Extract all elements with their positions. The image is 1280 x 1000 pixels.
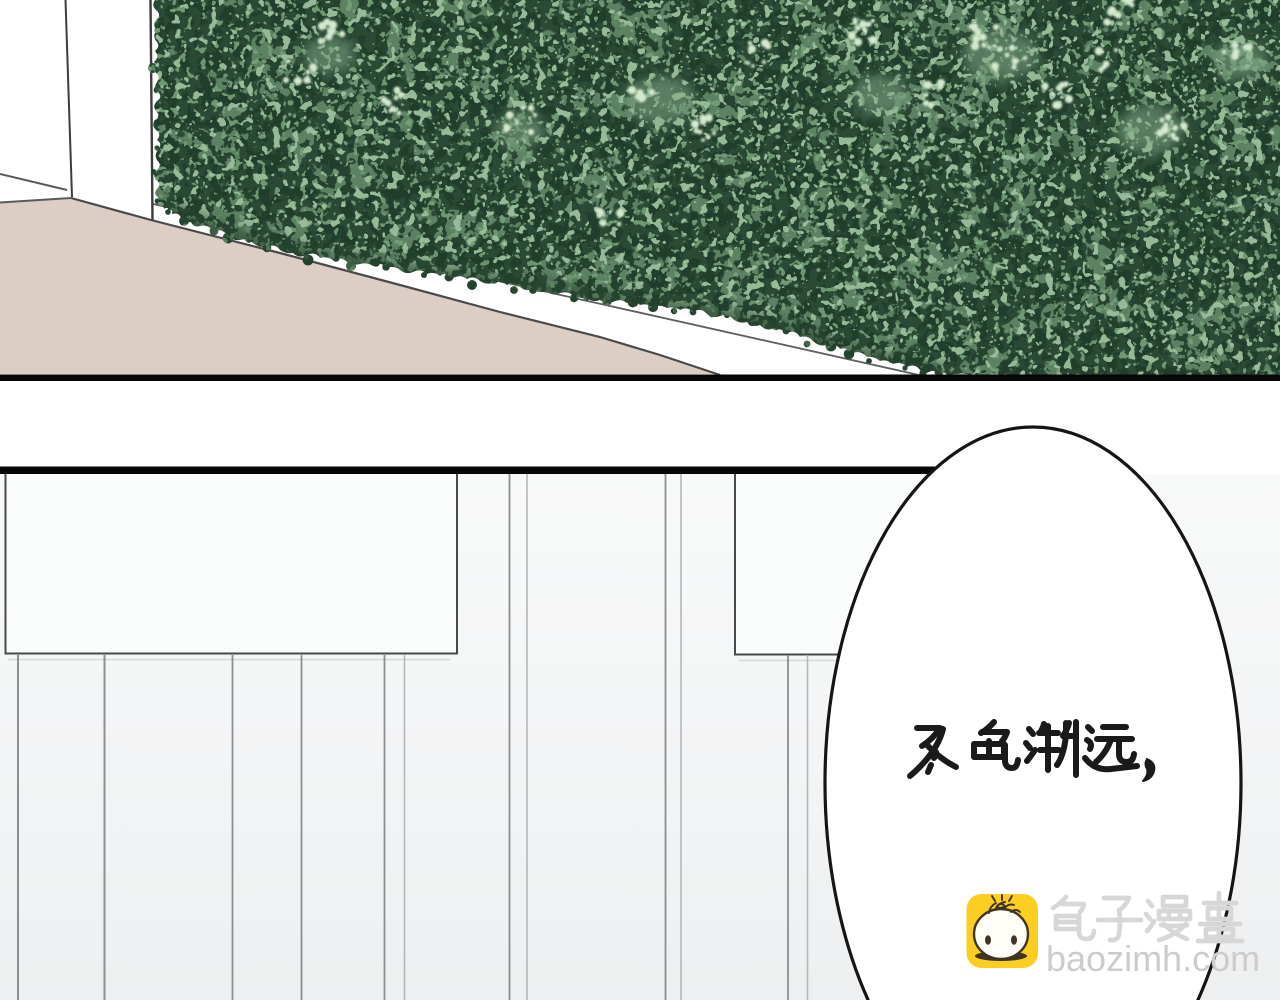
- svg-text:baozimh.com: baozimh.com: [1046, 938, 1260, 979]
